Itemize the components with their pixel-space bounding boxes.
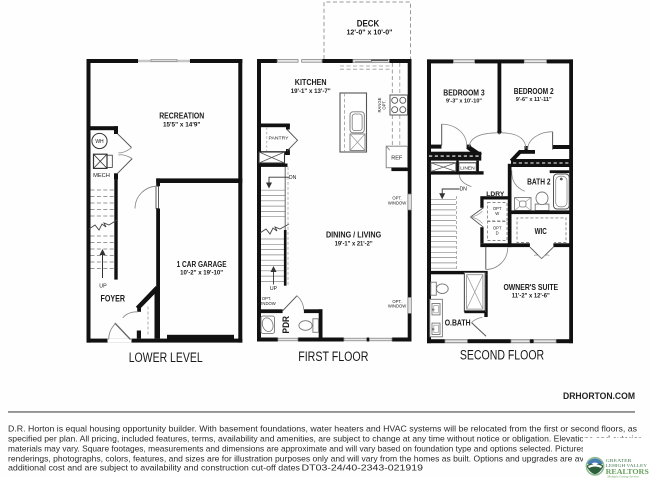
svg-text:1 CAR GARAGE: 1 CAR GARAGE: [177, 259, 227, 269]
svg-text:WINDOW: WINDOW: [388, 200, 406, 205]
svg-text:9'-3" x 10'-10": 9'-3" x 10'-10": [446, 99, 482, 105]
svg-text:WINDOW: WINDOW: [388, 304, 406, 309]
svg-text:D: D: [496, 231, 499, 236]
svg-text:9'-6" x 11'-11": 9'-6" x 11'-11": [516, 97, 552, 103]
svg-text:SECOND FLOOR: SECOND FLOOR: [460, 347, 545, 362]
svg-text:BATH 2: BATH 2: [527, 177, 551, 186]
svg-text:15'5" x 14'9": 15'5" x 14'9": [163, 121, 201, 128]
svg-text:FIRST FLOOR: FIRST FLOOR: [298, 349, 368, 364]
svg-text:REF: REF: [391, 156, 402, 162]
svg-text:DN: DN: [459, 187, 467, 193]
svg-text:19'-1" x 21'-2": 19'-1" x 21'-2": [335, 241, 373, 248]
svg-text:FOYER: FOYER: [101, 294, 126, 304]
svg-text:DRHORTON.COM: DRHORTON.COM: [563, 391, 635, 401]
svg-text:OPT.: OPT.: [382, 100, 387, 109]
svg-text:O.BATH: O.BATH: [445, 319, 471, 328]
svg-text:materials may vary. Square foo: materials may vary. Square footages, mea…: [8, 445, 609, 454]
svg-text:RECREATION: RECREATION: [159, 110, 204, 120]
svg-text:PANTRY: PANTRY: [269, 135, 289, 140]
svg-text:19'-1" x 13'-7": 19'-1" x 13'-7": [291, 88, 331, 95]
svg-text:W: W: [495, 211, 499, 216]
svg-text:BEDROOM 3: BEDROOM 3: [443, 87, 485, 97]
svg-text:RANGE: RANGE: [377, 97, 382, 112]
svg-text:LOWER LEVEL: LOWER LEVEL: [129, 350, 203, 365]
svg-text:WH: WH: [95, 139, 104, 145]
svg-text:DT03-24/40-2343-021919: DT03-24/40-2343-021919: [302, 463, 424, 472]
svg-text:PDR: PDR: [281, 315, 291, 333]
svg-text:UP: UP: [99, 283, 107, 289]
svg-text:WINDOW: WINDOW: [257, 301, 275, 306]
svg-text:renderings, photographs, color: renderings, photographs, colors, feature…: [8, 454, 619, 463]
svg-text:BEDROOM 2: BEDROOM 2: [514, 86, 554, 96]
svg-text:WIC: WIC: [535, 227, 547, 236]
svg-text:12'-0" x 10'-0": 12'-0" x 10'-0": [347, 28, 393, 37]
svg-text:DN: DN: [289, 175, 297, 181]
svg-text:MECH: MECH: [93, 173, 110, 179]
svg-text:OWNER'S SUITE: OWNER'S SUITE: [503, 282, 558, 292]
svg-text:UP: UP: [270, 286, 278, 292]
svg-text:LINEN: LINEN: [460, 165, 475, 171]
svg-text:specified per plan. All pricin: specified per plan. All pricing, include…: [8, 435, 641, 444]
svg-text:D.R. Horton is equal housing o: D.R. Horton is equal housing opportunity…: [8, 425, 637, 434]
svg-text:DINING / LIVING: DINING / LIVING: [326, 229, 382, 239]
svg-text:10'-2" x 19'-10": 10'-2" x 19'-10": [180, 269, 223, 276]
svg-text:KITCHEN: KITCHEN: [295, 77, 327, 87]
svg-text:11'-2" x 12'-6": 11'-2" x 12'-6": [512, 293, 550, 299]
svg-text:additional cost and are subjec: additional cost and are subject to avail…: [8, 463, 300, 472]
